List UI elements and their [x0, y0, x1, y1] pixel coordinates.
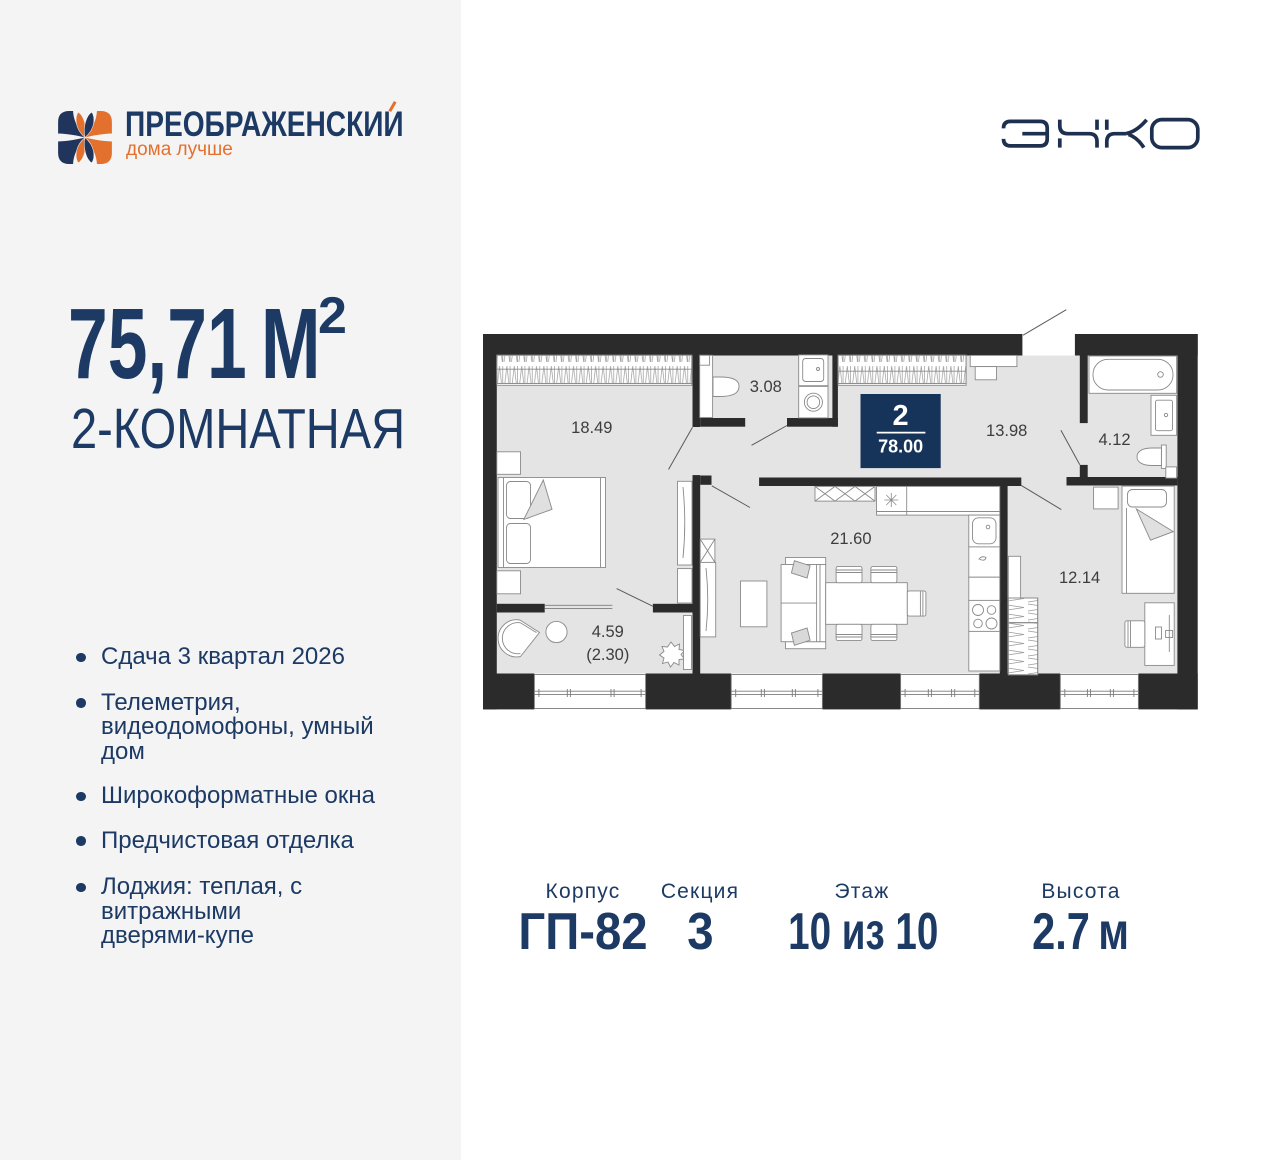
svg-text:4.12: 4.12 — [1098, 431, 1130, 449]
svg-text:12.14: 12.14 — [1059, 569, 1100, 587]
svg-text:18.49: 18.49 — [571, 419, 612, 437]
svg-text:3.08: 3.08 — [750, 378, 782, 396]
svg-text:(2.30): (2.30) — [586, 646, 629, 664]
svg-text:4.59: 4.59 — [592, 623, 624, 641]
svg-text:13.98: 13.98 — [986, 422, 1027, 440]
svg-text:2: 2 — [893, 400, 909, 432]
svg-text:78.00: 78.00 — [878, 437, 923, 457]
svg-text:21.60: 21.60 — [830, 530, 871, 548]
